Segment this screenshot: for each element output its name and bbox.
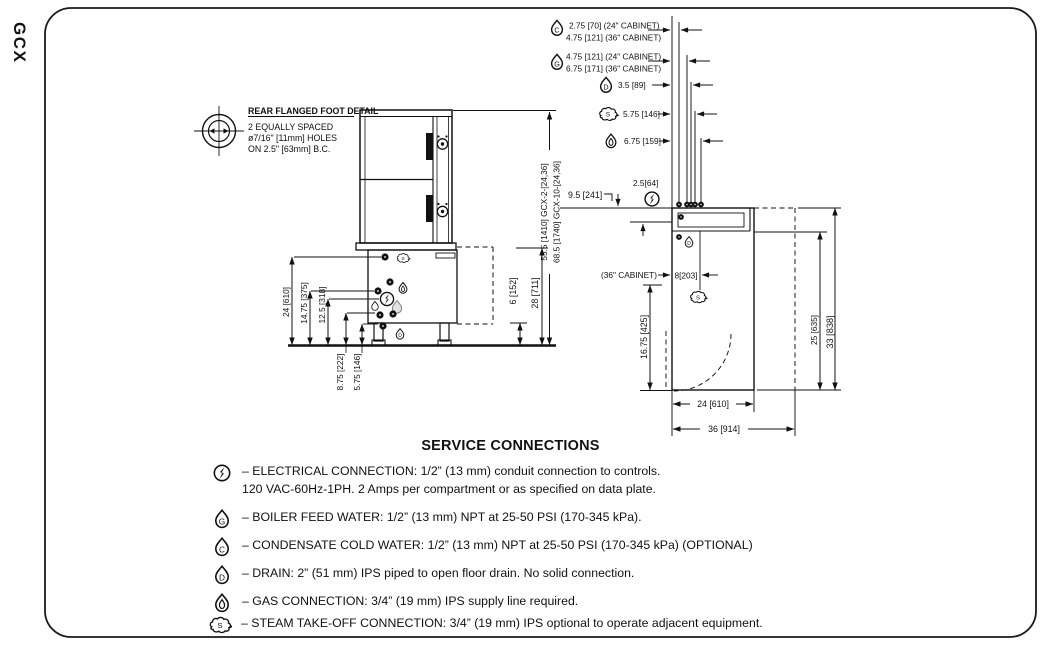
foot-detail-line: ø7/16" [11mm] HOLES	[248, 133, 337, 143]
dim-label: 5.75 [146]	[352, 354, 362, 391]
service-item-boiler-feed: – BOILER FEED WATER: 1/2” (13 mm) NPT at…	[211, 508, 642, 530]
electrical-icon	[645, 192, 659, 206]
dim-label: 9.5 [241]	[568, 190, 602, 200]
dim-label: 24 [610]	[697, 399, 729, 409]
gas-flame-icon	[399, 283, 407, 294]
condensate-drop-icon	[552, 20, 563, 35]
foot-detail-line: ON 2.5" [63mm] B.C.	[248, 144, 330, 154]
lower-door-handle	[426, 195, 433, 222]
drain-drop-icon	[211, 564, 233, 586]
service-item-text: – GAS CONNECTION: 3/4” (19 mm) IPS suppl…	[242, 592, 578, 610]
dim-label: 2.5[64]	[633, 178, 658, 188]
service-item-text: – DRAIN: 2” (51 mm) IPS piped to open fl…	[242, 564, 634, 582]
service-item-electrical: – ELECTRICAL CONNECTION: 1/2” (13 mm) co…	[211, 462, 660, 484]
steam-cloud-icon	[208, 614, 232, 636]
service-connections-title: SERVICE CONNECTIONS	[398, 438, 623, 454]
spec-sheet-page: G C D S GCX REAR FLANGED FOOT DETAIL 2 E…	[0, 0, 1043, 646]
dim-label: 8.75 [222]	[335, 354, 345, 391]
service-item-text: – CONDENSATE COLD WATER: 1/2” (13 mm) NP…	[242, 536, 753, 554]
dim-label: 3.5 [89]	[618, 80, 646, 90]
dim-label: 55.5 [1410] GCX-2-[24,36]	[539, 163, 549, 260]
dim-label: 14.75 [375]	[299, 282, 309, 324]
product-label: GCX	[10, 22, 29, 63]
service-item-steam: – STEAM TAKE-OFF CONNECTION: 3/4” (19 mm…	[208, 614, 763, 636]
foot-detail-line: 2 EQUALLY SPACED	[248, 122, 333, 132]
foot-detail-symbol	[194, 106, 244, 156]
door-swing-dashed	[666, 208, 795, 391]
service-item-gas: – GAS CONNECTION: 3/4” (19 mm) IPS suppl…	[211, 592, 578, 614]
boiler-feed-drop-icon	[211, 508, 233, 530]
gas-flame-icon	[211, 592, 233, 614]
condensate-drop-icon	[211, 536, 233, 558]
dim-label: 8[203]	[674, 271, 697, 281]
drain-drop-icon	[396, 329, 404, 340]
dim-label: 4.75 [121] (36" CABINET)	[566, 33, 661, 43]
service-item-text: 120 VAC-60Hz-1PH. 2 Amps per compartment…	[242, 482, 656, 496]
electrical-icon	[211, 462, 233, 484]
dim-label: 24 [610]	[281, 287, 291, 317]
gas-flame-icon	[606, 134, 616, 147]
steam-cloud-icon	[397, 254, 410, 263]
dim-label: 6 [152]	[508, 278, 518, 305]
dashed-projection	[457, 247, 493, 324]
dim-label: 2.75 [70] (24" CABINET)	[569, 21, 660, 31]
service-item-text: – BOILER FEED WATER: 1/2” (13 mm) NPT at…	[242, 508, 642, 526]
dim-label: (36" CABINET)	[601, 270, 657, 280]
control-knob	[437, 135, 447, 216]
dim-label: 25 [635]	[809, 315, 819, 345]
dim-label: 16.75 [425]	[639, 315, 649, 359]
drain-drop-icon	[685, 237, 693, 248]
dim-label: 6.75 [159]	[624, 136, 661, 146]
service-item-condensate: – CONDENSATE COLD WATER: 1/2” (13 mm) NP…	[211, 536, 753, 558]
service-item-text: – ELECTRICAL CONNECTION: 1/2” (13 mm) co…	[242, 462, 660, 480]
drain-drop-icon	[601, 77, 612, 92]
drop-icon	[372, 301, 378, 310]
dim-label: 36 [914]	[708, 424, 740, 434]
dim-label: 6.75 [171] (36" CABINET)	[566, 64, 661, 74]
electrical-icon	[380, 292, 393, 305]
dim-label: 12.5 [318]	[317, 287, 327, 324]
dim-label: 4.75 [121] (24" CABINET)	[566, 52, 661, 62]
dim-label: 68.5 [1740] GCX-10-[24,36]	[552, 161, 562, 263]
steam-cloud-icon	[691, 291, 708, 302]
plan-view: 2.75 [70] (24" CABINET) 4.75 [121] (36" …	[552, 16, 841, 436]
upper-door-handle	[426, 133, 433, 160]
dim-label: 28 [711]	[530, 277, 540, 308]
dim-label: 5.75 [146]	[623, 109, 660, 119]
boiler-feed-drop-icon	[552, 54, 563, 69]
front-connection-symbols	[372, 253, 410, 339]
service-item-text: – STEAM TAKE-OFF CONNECTION: 3/4” (19 mm…	[241, 614, 763, 632]
steam-cloud-icon	[600, 108, 619, 121]
dim-label: 33 [838]	[825, 315, 835, 348]
service-item-drain: – DRAIN: 2” (51 mm) IPS piped to open fl…	[211, 564, 634, 586]
